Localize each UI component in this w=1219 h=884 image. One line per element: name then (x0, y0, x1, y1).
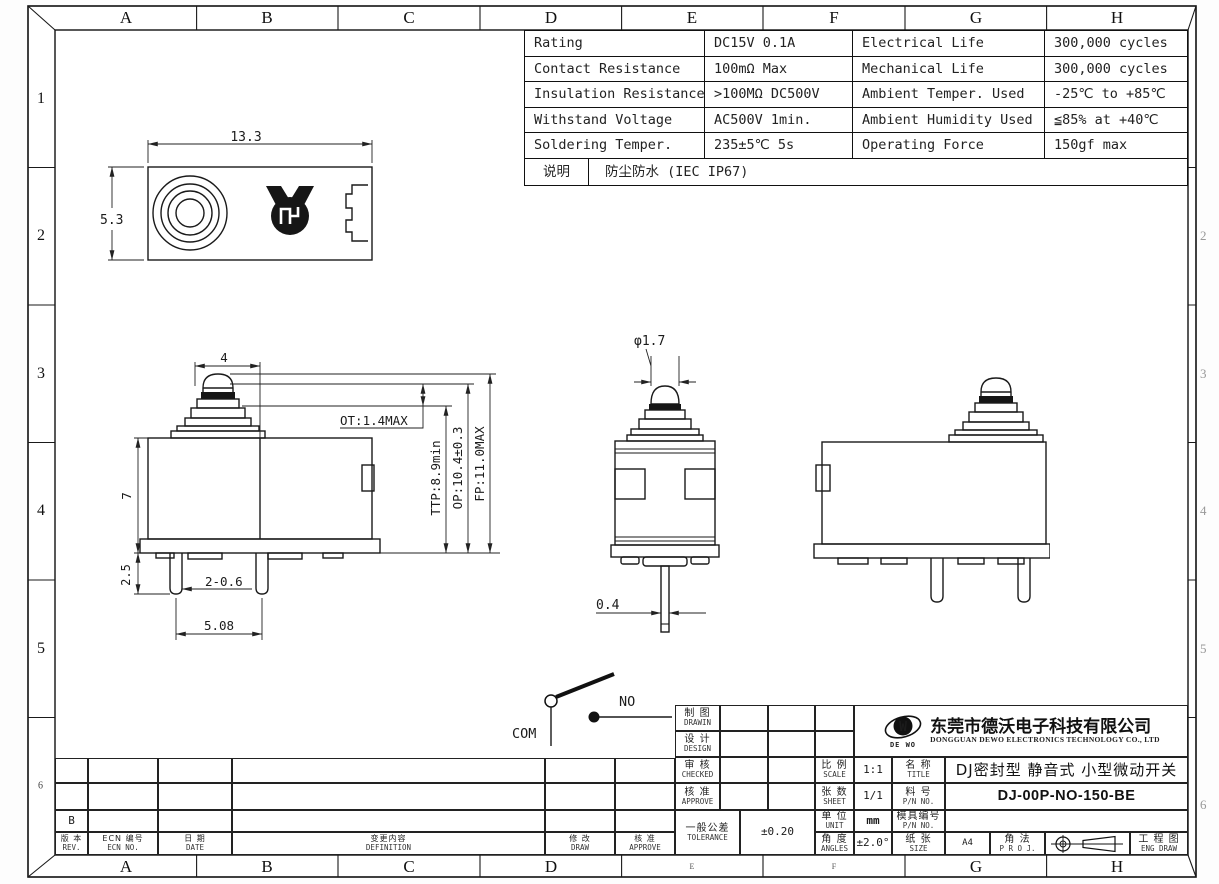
titleblock-approve-label: 核 准APPROVE (675, 783, 720, 810)
col-label-bottom-a: A (120, 857, 132, 877)
right-view-drawing (798, 356, 1050, 608)
com-terminal (545, 695, 557, 707)
spec-value: -25℃ to +85℃ (1045, 82, 1187, 108)
col-label-top-h: H (1111, 8, 1123, 28)
svg-text:W: W (899, 720, 907, 735)
mold-number-value (945, 810, 1188, 832)
spec-value: 100mΩ Max (705, 57, 853, 83)
projection-symbol-cell (1045, 832, 1130, 855)
row-label-left-6: 6 (38, 781, 43, 792)
dim-pin-size: 2-0.6 (205, 574, 243, 589)
row-label-right-2: 2 (1200, 228, 1207, 244)
no-label: NO (619, 694, 635, 710)
unit-label: 单 位UNIT (815, 810, 854, 832)
top-view-drawing: 13.3 5.3 (98, 128, 390, 270)
row-label-left-4: 4 (37, 502, 45, 520)
front-view-drawing: 4 7 2.5 2-0.6 5.08 FP:11.0MAX OP:10.4±0.… (118, 348, 510, 658)
row-label-left-1: 1 (37, 90, 45, 108)
dim-ot: OT:1.4MAX (340, 413, 408, 428)
spec-label: Insulation Resistance (525, 82, 705, 108)
title-block: 制 图DRAWIN W DE WO 东莞市德沃电子科技有限公司 DONGGUAN… (675, 705, 1188, 855)
dewo-logo: W DE WO (882, 711, 924, 751)
col-label-top-a: A (120, 8, 132, 28)
row-label-left-3: 3 (37, 365, 45, 383)
row-label-left-5: 5 (37, 640, 45, 658)
dewo-logo-text: DE WO (890, 741, 916, 749)
side-view-drawing: φ1.7 0.4 (588, 328, 772, 640)
revision-table: B 版 本REV. ECN 编号ECN NO. 日 期DATE 变更内容DEFI… (55, 758, 675, 855)
dim-fp: FP:11.0MAX (472, 426, 487, 502)
spec-label: Ambient Humidity Used (853, 108, 1045, 134)
row-label-right-5: 5 (1200, 641, 1207, 657)
dim-pin-pitch: 5.08 (204, 618, 234, 633)
spec-note-label: 说明 (525, 159, 589, 185)
revision-header-rev: 版 本REV. (55, 832, 88, 855)
dim-pin-exposed: 2.5 (119, 564, 133, 586)
dim-pin-thickness: 0.4 (596, 598, 620, 613)
revision-rev-value: B (55, 810, 88, 832)
side-plunger (627, 386, 703, 441)
spec-label: Electrical Life (853, 31, 1045, 57)
pn-label: 料 号P/N NO. (892, 783, 945, 810)
spec-label: Rating (525, 31, 705, 57)
titleblock-design-label: 设 计DESIGN (675, 731, 720, 757)
spec-value: 235±5℃ 5s (705, 133, 853, 159)
row-label-right-3: 3 (1200, 366, 1207, 382)
projection-label: 角 法P R O J. (990, 832, 1045, 855)
mold-number-label: 模具编号P/N NO. (892, 810, 945, 832)
col-label-bottom-d: D (545, 857, 557, 877)
row-label-right-6: 6 (1200, 797, 1207, 813)
col-label-bottom-h: H (1111, 857, 1123, 877)
revision-header-approve: 核 准APPROVE (615, 832, 675, 855)
spec-value: >100MΩ DC500V (705, 82, 853, 108)
col-label-top-c: C (403, 8, 414, 28)
col-label-top-d: D (545, 8, 557, 28)
part-number: DJ-00P-NO-150-BE (945, 783, 1188, 810)
sheet-value: 1/1 (854, 783, 892, 810)
spec-value: 150gf max (1045, 133, 1187, 159)
scale-value: 1:1 (854, 757, 892, 783)
revision-header-draw: 修 改DRAW (545, 832, 615, 855)
dim-topview-width: 13.3 (230, 130, 261, 145)
drawing-title: DJ密封型 静音式 小型微动开关 (945, 757, 1188, 783)
eng-draw-label: 工 程 图ENG DRAW (1130, 832, 1188, 855)
sheet-label: 张 数SHEET (815, 783, 854, 810)
dewo-logo-engraving (266, 186, 314, 235)
col-label-top-g: G (970, 8, 982, 28)
col-label-bottom-f: F (832, 862, 836, 871)
dim-ttp: TTP:8.9min (428, 440, 443, 515)
spec-label: Soldering Temper. (525, 133, 705, 159)
dim-body-height: 7 (119, 492, 134, 500)
dim-topview-height: 5.3 (100, 213, 123, 228)
tolerance-value: ±0.20 (740, 810, 815, 855)
company-name-cn: 东莞市德沃电子科技有限公司 (930, 718, 1151, 737)
dim-plunger-dia: φ1.7 (634, 334, 665, 349)
col-label-top-e: E (687, 8, 697, 28)
row-label-left-2: 2 (37, 227, 45, 245)
titleblock-checked-label: 审 核CHECKED (675, 757, 720, 783)
front-body (140, 438, 380, 594)
engineering-drawing-sheet: { "frame": { "columns": ["A", "B", "C", … (0, 0, 1219, 884)
col-label-bottom-e: E (690, 862, 695, 871)
angles-value: ±2.0° (854, 832, 892, 855)
right-plunger (949, 378, 1043, 442)
spec-label: Mechanical Life (853, 57, 1045, 83)
col-label-top-b: B (261, 8, 272, 28)
row-label-right-4: 4 (1200, 503, 1207, 519)
circuit-diagram: COM NO (492, 656, 684, 756)
company-cell: W DE WO 东莞市德沃电子科技有限公司 DONGGUAN DEWO ELEC… (854, 705, 1188, 757)
revision-header-ecn: ECN 编号ECN NO. (88, 832, 158, 855)
spec-note-value: 防尘防水 (IEC IP67) (589, 159, 1187, 185)
revision-header-definition: 变更内容DEFINITION (232, 832, 545, 855)
spec-table: Rating DC15V 0.1A Electrical Life 300,00… (524, 30, 1188, 186)
spec-note-row: 说明 防尘防水 (IEC IP67) (525, 159, 1187, 185)
revision-header-date: 日 期DATE (158, 832, 232, 855)
unit-value: mm (854, 810, 892, 832)
paper-size-label: 纸 张SIZE (892, 832, 945, 855)
projection-symbol-icon (1049, 834, 1127, 854)
titleblock-drawn-label: 制 图DRAWIN (675, 705, 720, 731)
spec-label: Withstand Voltage (525, 108, 705, 134)
connector-outline (346, 185, 368, 241)
spec-value: ≦85% at +40℃ (1045, 108, 1187, 134)
dim-plunger-width: 4 (220, 350, 228, 365)
tolerance-label: 一般公差TOLERANCE (675, 810, 740, 855)
no-terminal (589, 712, 600, 723)
col-label-bottom-b: B (261, 857, 272, 877)
spec-value: AC500V 1min. (705, 108, 853, 134)
title-label: 名 称TITLE (892, 757, 945, 783)
scale-label: 比 例SCALE (815, 757, 854, 783)
spec-label: Ambient Temper. Used (853, 82, 1045, 108)
col-label-bottom-c: C (403, 857, 414, 877)
side-body (611, 441, 719, 632)
paper-size-value: A4 (945, 832, 990, 855)
spec-label: Operating Force (853, 133, 1045, 159)
col-label-top-f: F (829, 8, 838, 28)
dim-op: OP:10.4±0.3 (450, 427, 465, 510)
right-body (814, 442, 1050, 602)
spec-value: DC15V 0.1A (705, 31, 853, 57)
col-label-bottom-g: G (970, 857, 982, 877)
spec-value: 300,000 cycles (1045, 57, 1187, 83)
company-name-en: DONGGUAN DEWO ELECTRONICS TECHNOLOGY CO.… (930, 736, 1160, 744)
plunger-top-circles (153, 176, 227, 250)
spec-table-grid: Rating DC15V 0.1A Electrical Life 300,00… (525, 31, 1187, 159)
com-label: COM (512, 726, 536, 742)
spec-value: 300,000 cycles (1045, 31, 1187, 57)
spec-label: Contact Resistance (525, 57, 705, 83)
angles-label: 角 度ANGLES (815, 832, 854, 855)
